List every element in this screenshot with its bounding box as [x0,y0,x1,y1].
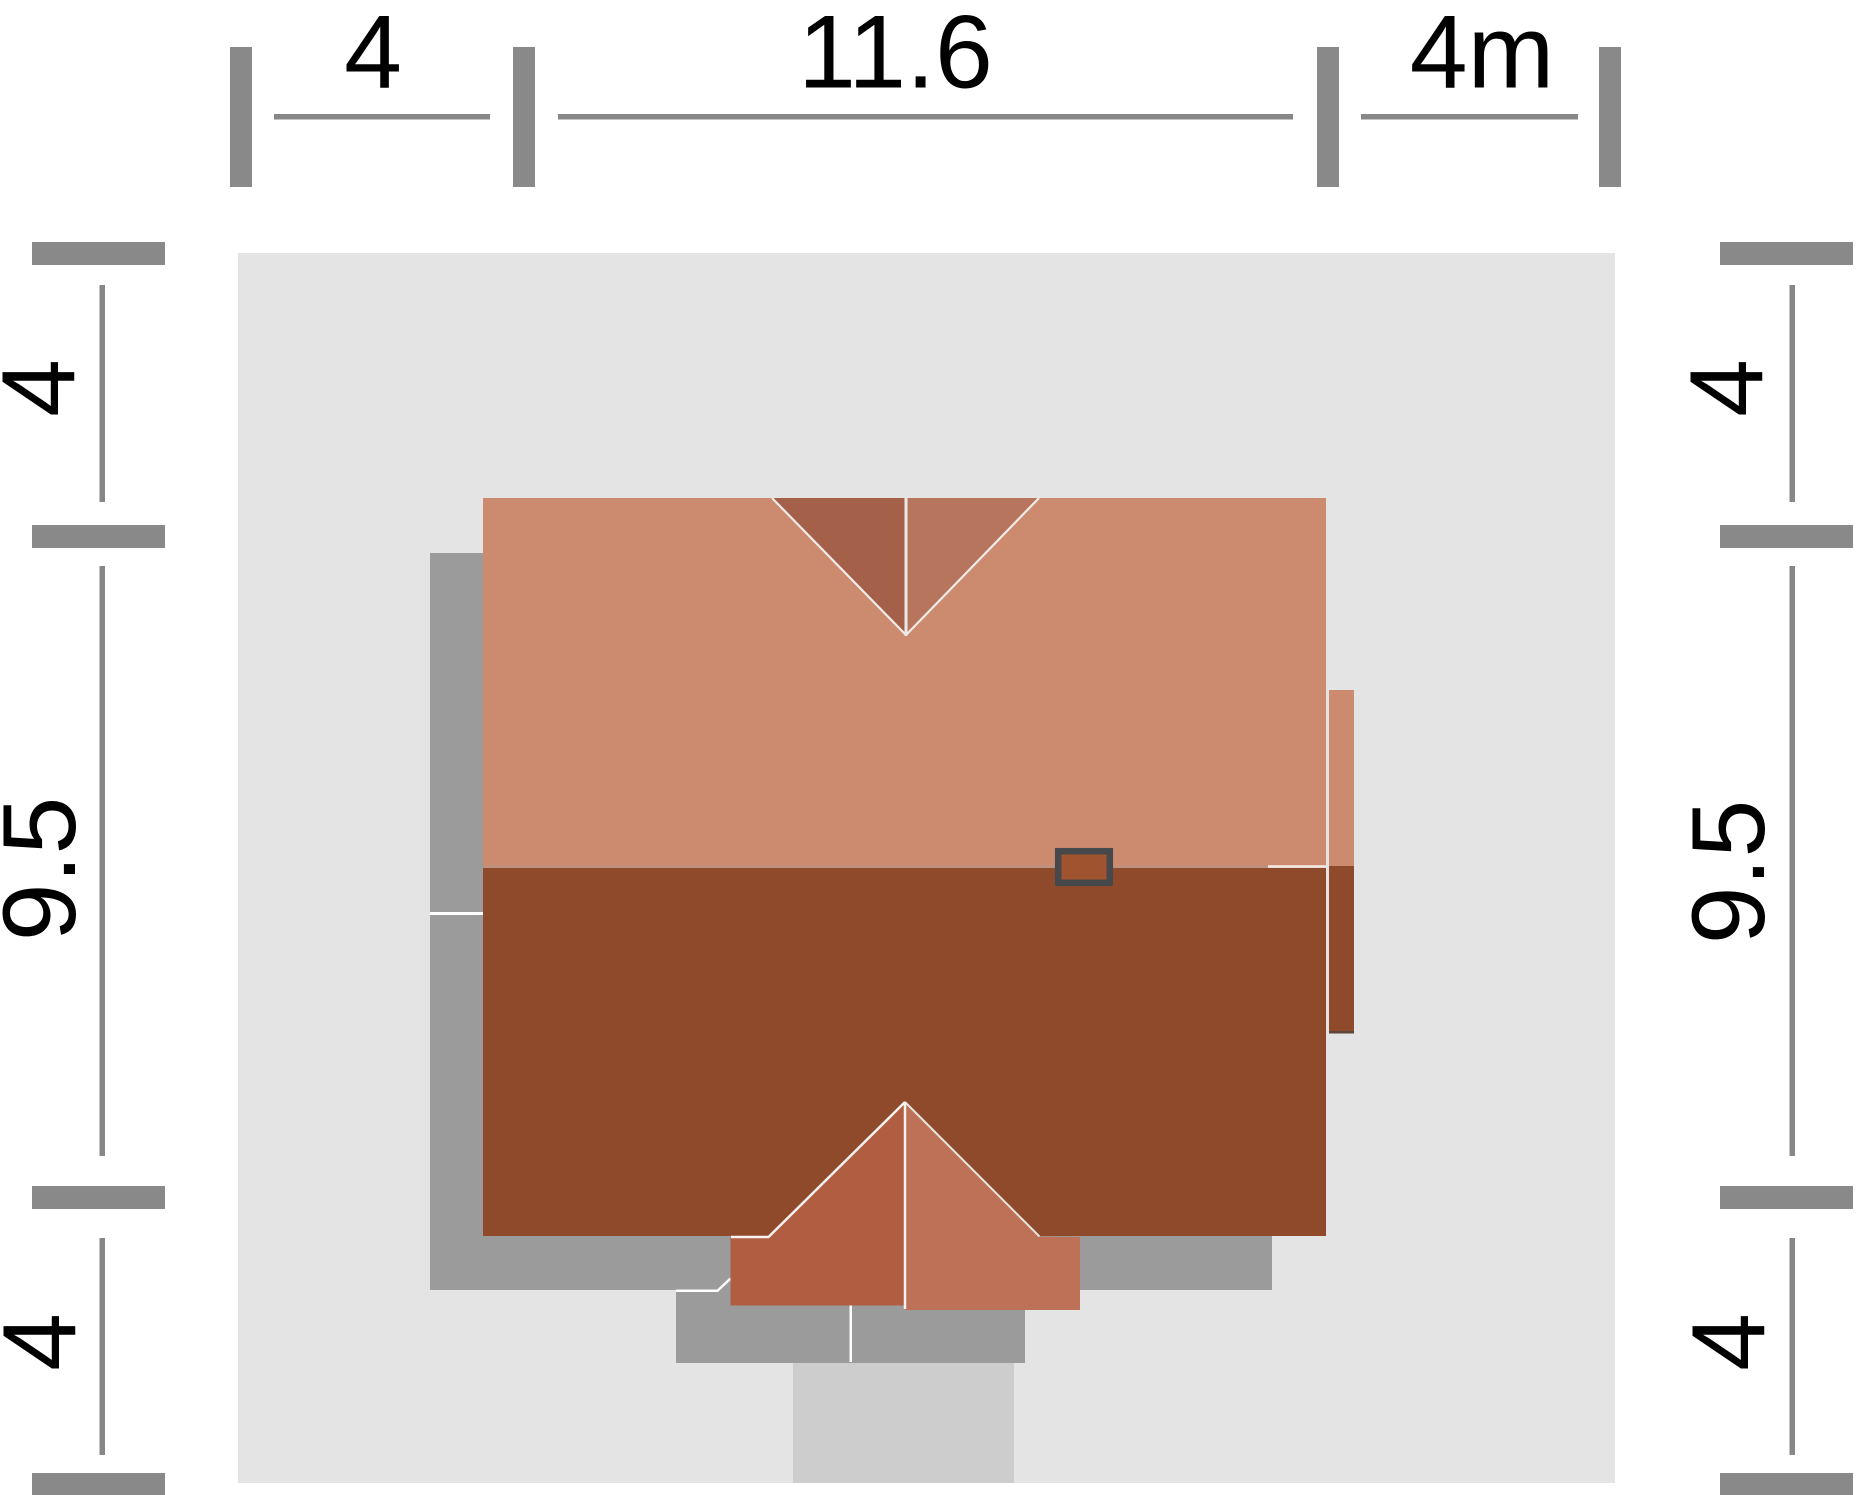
svg-text:9.5: 9.5 [1671,800,1787,945]
svg-text:11.6: 11.6 [798,0,993,111]
svg-text:4: 4 [0,1313,98,1371]
svg-text:4m: 4m [1410,0,1554,111]
svg-text:4: 4 [0,359,97,417]
svg-text:4: 4 [344,0,402,111]
svg-text:4: 4 [1671,1313,1787,1371]
svg-text:9.5: 9.5 [0,797,98,942]
svg-text:4: 4 [1669,359,1785,417]
